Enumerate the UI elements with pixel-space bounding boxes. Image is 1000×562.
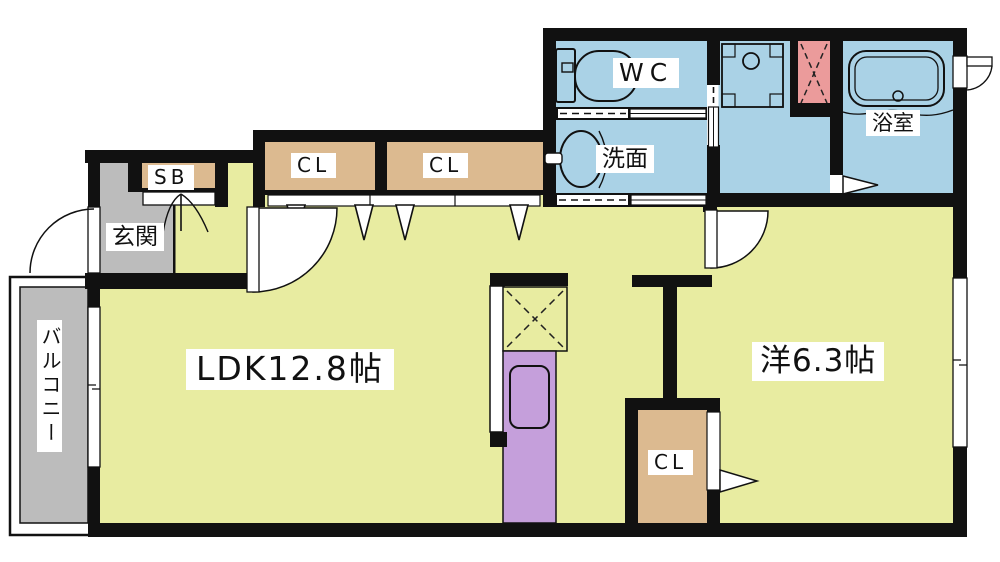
- closet3-label: CL: [648, 450, 693, 475]
- floor-plan: LDK12.8帖 洋6.3帖 WC 洗面 浴室 玄関 SB CL CL CL バ…: [0, 0, 1000, 562]
- balcony-sliding-door-icon: [88, 307, 100, 467]
- balcony-label: バルコニー: [37, 320, 62, 452]
- bathroom-label: 浴室: [866, 110, 920, 136]
- western-room-label: 洋6.3帖: [752, 342, 884, 381]
- western-room-window-icon: [953, 278, 967, 447]
- kitchen-sink-icon: [510, 366, 549, 428]
- entrance-label: 玄関: [106, 223, 164, 251]
- closet1-label: CL: [291, 153, 336, 178]
- laundry-sliding-door-icon: [709, 85, 719, 147]
- floor-plan-graphics: [0, 0, 1000, 562]
- wc-sliding-door-icon: [558, 109, 706, 118]
- bathroom-window-icon: [953, 56, 992, 90]
- kitchen-partition: [490, 286, 504, 432]
- wc-label: WC: [613, 58, 679, 88]
- washroom-sliding-door-icon: [557, 195, 706, 205]
- ldk-label: LDK12.8帖: [186, 349, 394, 390]
- shoe-box-label: SB: [148, 165, 194, 190]
- closet2-label: CL: [423, 153, 468, 178]
- washroom-label: 洗面: [596, 145, 654, 173]
- front-door-swing-icon: [30, 207, 100, 273]
